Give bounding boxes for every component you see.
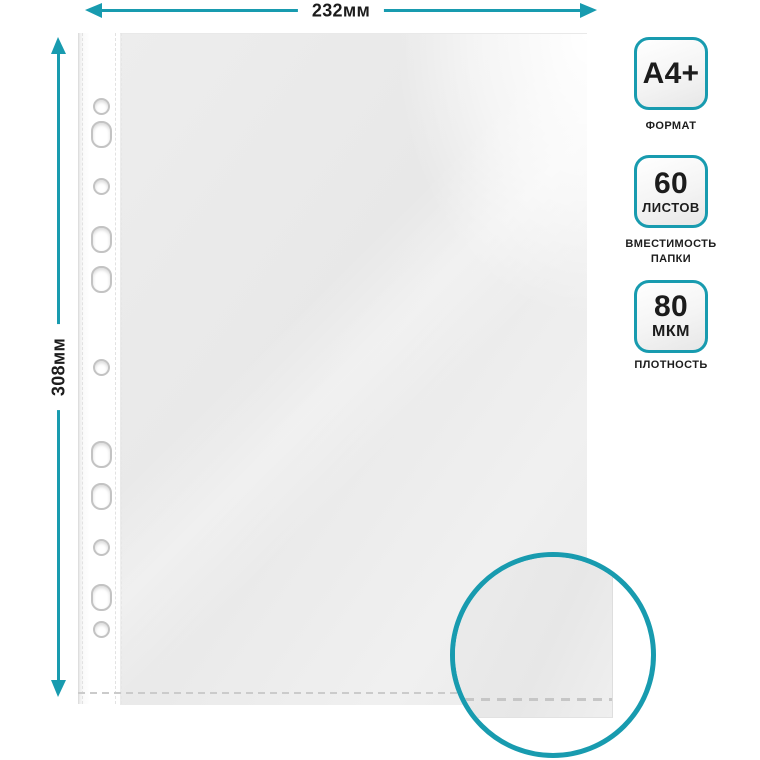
capacity-badge-caption: ВМЕСТИМОСТЬ ПАПКИ	[596, 237, 746, 267]
punch-hole-round	[93, 98, 110, 115]
punch-hole-oval	[91, 483, 112, 510]
punch-hole-oval	[91, 584, 112, 611]
punch-hole-round	[93, 359, 110, 376]
punch-hole-round	[93, 178, 110, 195]
punch-hole-oval	[91, 441, 112, 468]
stitch-line-body-edge	[121, 33, 122, 704]
product-infographic: 232мм 308мм A4+ ФОРМАТ 60 ЛИСТОВ ВМ	[0, 0, 760, 760]
thickness-badge-value: 80	[654, 292, 688, 322]
thickness-badge: 80 МКМ	[634, 280, 708, 353]
width-dimension-arrow: 232мм	[85, 3, 597, 18]
magnified-corner	[450, 552, 613, 718]
thickness-badge-caption: ПЛОТНОСТЬ	[596, 358, 746, 373]
arrowhead-down-icon	[51, 680, 66, 697]
arrowhead-right-icon	[580, 3, 597, 18]
punch-hole-round	[93, 621, 110, 638]
arrowhead-up-icon	[51, 37, 66, 54]
format-badge-caption: ФОРМАТ	[596, 119, 746, 134]
format-badge-value: A4+	[643, 59, 700, 89]
stitch-line-right	[115, 33, 116, 704]
capacity-caption-line1: ВМЕСТИМОСТЬ	[625, 238, 716, 250]
punch-hole-oval	[91, 226, 112, 253]
stitch-line-left	[82, 33, 83, 704]
capacity-badge: 60 ЛИСТОВ	[634, 155, 708, 228]
magnified-weld-seam	[450, 698, 612, 701]
arrowhead-left-icon	[85, 3, 102, 18]
capacity-badge-unit: ЛИСТОВ	[642, 200, 700, 215]
thickness-badge-unit: МКМ	[652, 323, 690, 341]
format-badge: A4+	[634, 37, 708, 110]
punch-hole-oval	[91, 266, 112, 293]
detail-magnifier-circle	[450, 552, 656, 758]
width-dimension-label: 232мм	[298, 0, 384, 21]
height-dimension-arrow: 308мм	[51, 37, 66, 697]
capacity-caption-line2: ПАПКИ	[651, 253, 691, 265]
capacity-badge-value: 60	[654, 169, 688, 199]
punch-hole-oval	[91, 121, 112, 148]
height-dimension-label: 308мм	[48, 324, 69, 410]
punch-hole-round	[93, 539, 110, 556]
